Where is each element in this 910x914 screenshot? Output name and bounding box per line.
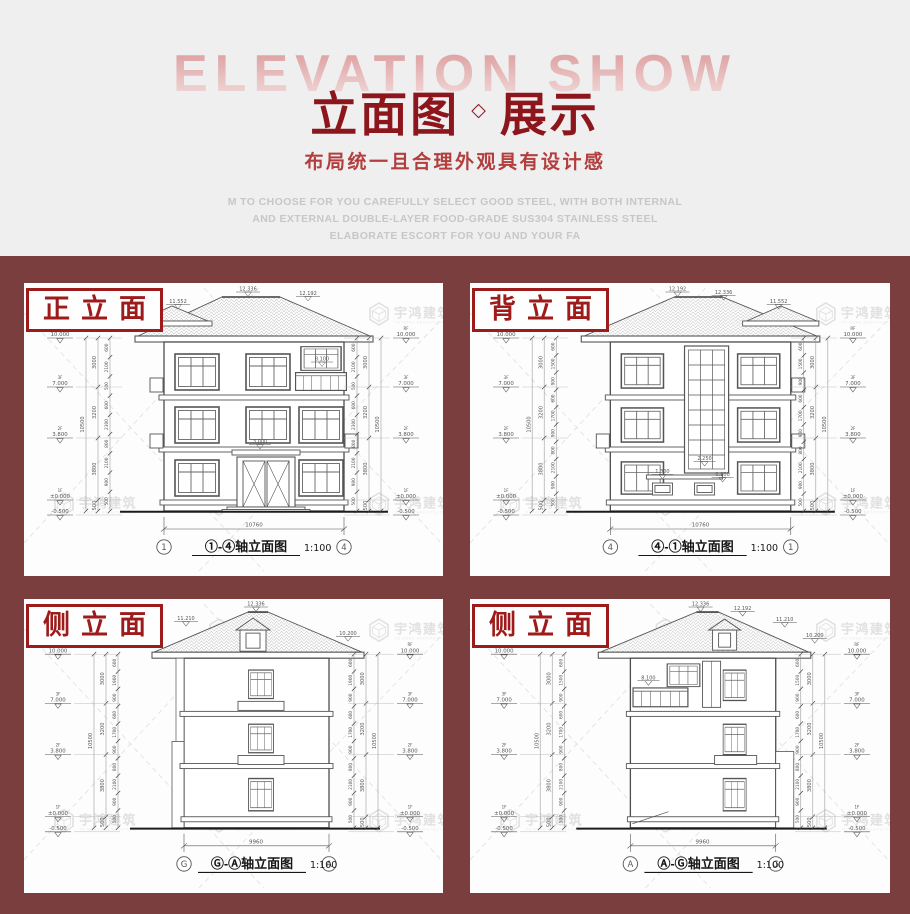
svg-text:2.250: 2.250 bbox=[697, 456, 711, 462]
dim-total-left: 10500 bbox=[534, 652, 542, 830]
svg-text:1700: 1700 bbox=[558, 727, 564, 738]
svg-text:500: 500 bbox=[798, 498, 804, 506]
svg-text:-0.500: -0.500 bbox=[844, 509, 862, 515]
dim-floors-right: 300032003800500 bbox=[807, 652, 815, 830]
svg-text:900: 900 bbox=[550, 481, 556, 489]
svg-text:3200: 3200 bbox=[538, 406, 544, 419]
svg-text:500: 500 bbox=[104, 497, 110, 505]
panel-side-elevation-ga: 侧立面 bbox=[24, 599, 443, 893]
svg-text:3000: 3000 bbox=[810, 356, 816, 369]
svg-text:3F: 3F bbox=[502, 691, 508, 696]
svg-text:3F: 3F bbox=[504, 375, 510, 380]
svg-text:1:100: 1:100 bbox=[310, 860, 337, 871]
panel-label-front: 正立面 bbox=[26, 288, 163, 332]
svg-text:1F: 1F bbox=[404, 488, 410, 493]
svg-text:G: G bbox=[181, 860, 188, 870]
svg-text:1F: 1F bbox=[850, 488, 856, 493]
svg-text:±0.000: ±0.000 bbox=[847, 811, 868, 817]
svg-text:2100: 2100 bbox=[795, 779, 801, 790]
drawing-caption: ①-④轴立面图 1:100 bbox=[192, 539, 331, 556]
svg-text:2100: 2100 bbox=[798, 462, 804, 473]
drawing-caption: Ⓐ-Ⓖ轴立面图 1:100 bbox=[644, 856, 784, 873]
svg-text:3000: 3000 bbox=[92, 356, 98, 369]
svg-text:④-①轴立面图: ④-①轴立面图 bbox=[651, 539, 733, 554]
svg-text:3.800: 3.800 bbox=[845, 432, 861, 438]
svg-text:600: 600 bbox=[798, 394, 804, 402]
svg-text:12.192: 12.192 bbox=[669, 287, 687, 293]
svg-text:3.800: 3.800 bbox=[498, 432, 514, 438]
dim-total-right: 10500 bbox=[375, 336, 383, 513]
svg-text:±0.000: ±0.000 bbox=[396, 494, 417, 500]
svg-text:1700: 1700 bbox=[550, 410, 556, 421]
building-side-ga bbox=[130, 612, 380, 829]
dim-floors-left: 300032003800500 bbox=[100, 652, 108, 830]
svg-text:-0.500: -0.500 bbox=[49, 826, 67, 832]
svg-text:4: 4 bbox=[608, 543, 613, 553]
svg-text:500: 500 bbox=[112, 815, 118, 823]
svg-text:8.100: 8.100 bbox=[315, 357, 329, 363]
level-marks-left: 10.000RF7.0003F3.8002F±0.0001F-0.500 bbox=[45, 642, 120, 837]
svg-text:2100: 2100 bbox=[351, 361, 357, 372]
svg-text:900: 900 bbox=[112, 797, 118, 805]
svg-text:3200: 3200 bbox=[807, 722, 813, 735]
svg-text:1.300: 1.300 bbox=[655, 469, 669, 475]
svg-text:800: 800 bbox=[112, 763, 118, 771]
svg-text:600: 600 bbox=[348, 711, 354, 719]
svg-text:900: 900 bbox=[112, 745, 118, 753]
svg-text:600: 600 bbox=[104, 343, 110, 351]
svg-text:4: 4 bbox=[341, 543, 346, 553]
svg-text:900: 900 bbox=[550, 429, 556, 437]
svg-text:1: 1 bbox=[161, 543, 166, 553]
dim-total-right: 10500 bbox=[819, 652, 827, 830]
svg-text:800: 800 bbox=[104, 439, 110, 447]
svg-text:10.000: 10.000 bbox=[847, 648, 866, 654]
svg-text:1F: 1F bbox=[56, 805, 62, 810]
svg-text:600: 600 bbox=[558, 658, 564, 666]
svg-text:Ⓖ-Ⓐ轴立面图: Ⓖ-Ⓐ轴立面图 bbox=[211, 856, 293, 871]
svg-text:10500: 10500 bbox=[534, 733, 540, 749]
svg-text:10.000: 10.000 bbox=[497, 332, 516, 338]
svg-text:RF: RF bbox=[854, 642, 860, 647]
svg-text:800: 800 bbox=[798, 446, 804, 454]
svg-text:±0.000: ±0.000 bbox=[50, 494, 71, 500]
svg-text:3.800: 3.800 bbox=[849, 749, 865, 755]
svg-text:2F: 2F bbox=[502, 742, 508, 747]
svg-text:10500: 10500 bbox=[372, 733, 378, 749]
svg-text:3F: 3F bbox=[56, 691, 62, 696]
svg-text:±0.000: ±0.000 bbox=[496, 494, 517, 500]
svg-text:10500: 10500 bbox=[375, 416, 381, 432]
svg-text:1F: 1F bbox=[408, 805, 414, 810]
svg-text:10500: 10500 bbox=[822, 416, 828, 432]
svg-text:800: 800 bbox=[351, 439, 357, 447]
svg-text:RF: RF bbox=[407, 642, 413, 647]
svg-text:10.000: 10.000 bbox=[49, 648, 68, 654]
svg-text:3F: 3F bbox=[408, 691, 414, 696]
svg-text:7.000: 7.000 bbox=[52, 381, 68, 387]
panel-side-elevation-ag: 侧立面 bbox=[470, 599, 890, 893]
panel-front-elevation: 正立面 bbox=[24, 283, 443, 576]
svg-text:10.200: 10.200 bbox=[806, 633, 823, 639]
svg-text:11.210: 11.210 bbox=[776, 617, 793, 623]
svg-text:3000: 3000 bbox=[100, 672, 106, 685]
dim-total-right: 10500 bbox=[372, 652, 380, 830]
svg-text:3.800: 3.800 bbox=[52, 432, 68, 438]
svg-text:7.000: 7.000 bbox=[402, 698, 418, 704]
svg-text:2100: 2100 bbox=[104, 457, 110, 468]
svg-text:3F: 3F bbox=[854, 691, 860, 696]
dim-total-left: 10500 bbox=[80, 336, 88, 513]
svg-text:500: 500 bbox=[360, 817, 366, 827]
dim-floors-right: 300032003800500 bbox=[363, 336, 371, 513]
bottom-dimension: 10760 bbox=[161, 517, 347, 535]
svg-text:2F: 2F bbox=[854, 742, 860, 747]
svg-text:0.900: 0.900 bbox=[715, 472, 729, 478]
svg-text:1F: 1F bbox=[504, 488, 510, 493]
svg-text:2100: 2100 bbox=[104, 361, 110, 372]
svg-text:3200: 3200 bbox=[546, 722, 552, 735]
svg-text:±0.000: ±0.000 bbox=[494, 811, 515, 817]
svg-text:3200: 3200 bbox=[363, 406, 369, 419]
svg-text:1500: 1500 bbox=[550, 358, 556, 369]
page-title: 立面图◇展示 bbox=[0, 76, 910, 145]
svg-text:Ⓐ-Ⓖ轴立面图: Ⓐ-Ⓖ轴立面图 bbox=[657, 856, 739, 871]
svg-text:500: 500 bbox=[351, 382, 357, 390]
svg-text:3000: 3000 bbox=[546, 672, 552, 685]
dim-inner-left: 600150090060017009008002100900500 bbox=[550, 336, 558, 513]
dim-inner-right: 600210050060023008002100900500 bbox=[351, 336, 359, 513]
svg-text:1F: 1F bbox=[58, 488, 64, 493]
svg-text:900: 900 bbox=[348, 693, 354, 701]
svg-text:900: 900 bbox=[348, 797, 354, 805]
svg-text:600: 600 bbox=[112, 711, 118, 719]
svg-text:500: 500 bbox=[795, 815, 801, 823]
svg-text:3800: 3800 bbox=[360, 779, 366, 792]
svg-text:10760: 10760 bbox=[245, 523, 263, 529]
svg-text:10.000: 10.000 bbox=[495, 648, 514, 654]
dim-floors-right: 300032003800500 bbox=[360, 652, 368, 830]
svg-text:±0.000: ±0.000 bbox=[48, 811, 68, 817]
svg-text:12.336: 12.336 bbox=[715, 290, 733, 296]
svg-text:800: 800 bbox=[795, 763, 801, 771]
dim-floors-right: 300032003800500 bbox=[810, 336, 818, 513]
svg-text:500: 500 bbox=[550, 498, 556, 506]
svg-text:900: 900 bbox=[558, 745, 564, 753]
svg-text:9960: 9960 bbox=[696, 839, 710, 845]
svg-text:1700: 1700 bbox=[112, 727, 118, 738]
dim-total-left: 10500 bbox=[526, 336, 534, 513]
svg-text:10.000: 10.000 bbox=[401, 648, 420, 654]
svg-text:①-④轴立面图: ①-④轴立面图 bbox=[205, 539, 287, 554]
svg-text:1:100: 1:100 bbox=[757, 860, 784, 871]
svg-text:600: 600 bbox=[795, 658, 801, 666]
svg-text:500: 500 bbox=[363, 501, 369, 511]
svg-text:600: 600 bbox=[351, 401, 357, 409]
svg-text:12.192: 12.192 bbox=[299, 291, 317, 297]
svg-text:±0.000: ±0.000 bbox=[843, 494, 864, 500]
diamond-icon: ◇ bbox=[471, 99, 489, 122]
svg-text:900: 900 bbox=[104, 478, 110, 486]
svg-text:500: 500 bbox=[538, 501, 544, 511]
dim-inner-right: 600190090060017009008002100900500 bbox=[348, 652, 356, 830]
svg-text:9960: 9960 bbox=[249, 839, 263, 845]
svg-text:11.210: 11.210 bbox=[177, 616, 194, 622]
dim-floors-left: 300032003800500 bbox=[546, 652, 554, 830]
svg-text:600: 600 bbox=[348, 658, 354, 666]
svg-text:900: 900 bbox=[795, 745, 801, 753]
dim-floors-left: 300032003800500 bbox=[538, 336, 546, 513]
svg-text:600: 600 bbox=[351, 343, 357, 351]
description-line-3: ELABORATE ESCORT FOR YOU AND YOUR FA bbox=[0, 230, 910, 242]
svg-text:2F: 2F bbox=[408, 742, 414, 747]
svg-text:1:100: 1:100 bbox=[751, 543, 778, 554]
svg-text:800: 800 bbox=[550, 446, 556, 454]
svg-text:3800: 3800 bbox=[92, 463, 98, 476]
svg-text:1F: 1F bbox=[502, 805, 508, 810]
description-line-2: AND EXTERNAL DOUBLE-LAYER FOOD-GRADE SUS… bbox=[0, 213, 910, 225]
panel-back-elevation: 背立面 bbox=[470, 283, 890, 576]
svg-text:1900: 1900 bbox=[112, 674, 118, 685]
svg-text:10.000: 10.000 bbox=[843, 332, 862, 338]
svg-text:600: 600 bbox=[795, 711, 801, 719]
svg-text:12.192: 12.192 bbox=[734, 606, 751, 612]
svg-text:600: 600 bbox=[550, 342, 556, 350]
dim-inner-right: 600150090060017009008002100900500 bbox=[798, 336, 806, 513]
svg-text:±0.000: ±0.000 bbox=[400, 811, 420, 817]
svg-text:500: 500 bbox=[807, 817, 813, 827]
svg-text:3.800: 3.800 bbox=[402, 749, 418, 755]
svg-text:900: 900 bbox=[558, 797, 564, 805]
dim-inner-left: 600210050060023008002100900500 bbox=[104, 336, 112, 513]
svg-text:7.000: 7.000 bbox=[398, 381, 414, 387]
svg-text:2100: 2100 bbox=[348, 779, 354, 790]
svg-text:500: 500 bbox=[351, 497, 357, 505]
svg-text:3000: 3000 bbox=[807, 672, 813, 685]
svg-text:3.800: 3.800 bbox=[398, 432, 414, 438]
svg-text:7.000: 7.000 bbox=[50, 698, 66, 704]
svg-text:3F: 3F bbox=[58, 375, 64, 380]
svg-text:2F: 2F bbox=[850, 426, 856, 431]
svg-text:2F: 2F bbox=[58, 426, 64, 431]
svg-text:600: 600 bbox=[104, 401, 110, 409]
svg-text:3.800: 3.800 bbox=[50, 749, 66, 755]
dim-floors-left: 300032003800500 bbox=[92, 336, 100, 513]
dim-total-left: 10500 bbox=[88, 652, 96, 830]
svg-text:3200: 3200 bbox=[100, 722, 106, 735]
svg-text:12.336: 12.336 bbox=[239, 287, 257, 293]
svg-text:11.552: 11.552 bbox=[770, 299, 788, 305]
svg-text:1500: 1500 bbox=[795, 674, 801, 685]
svg-text:3800: 3800 bbox=[810, 463, 816, 476]
svg-text:1: 1 bbox=[788, 543, 793, 553]
building-side-ag bbox=[576, 612, 827, 829]
svg-text:500: 500 bbox=[348, 815, 354, 823]
svg-text:500: 500 bbox=[810, 501, 816, 511]
level-marks-right: 10.000RF7.0003F3.8002F±0.0001F-0.500 bbox=[795, 642, 870, 837]
svg-text:3800: 3800 bbox=[538, 463, 544, 476]
svg-text:-0.500: -0.500 bbox=[495, 826, 513, 832]
bottom-dimension: 9960 bbox=[181, 834, 332, 852]
header-section: ELEVATION SHOW 立面图◇展示 布局统一且合理外观具有设计感 M T… bbox=[0, 0, 910, 256]
svg-text:10500: 10500 bbox=[88, 733, 94, 749]
drawing-caption: Ⓖ-Ⓐ轴立面图 1:100 bbox=[198, 856, 337, 873]
svg-text:600: 600 bbox=[558, 711, 564, 719]
svg-text:900: 900 bbox=[798, 429, 804, 437]
svg-text:600: 600 bbox=[798, 342, 804, 350]
svg-text:3000: 3000 bbox=[363, 356, 369, 369]
panel-label-side-ag: 侧立面 bbox=[472, 604, 609, 648]
svg-text:900: 900 bbox=[558, 693, 564, 701]
svg-text:900: 900 bbox=[798, 377, 804, 385]
svg-text:900: 900 bbox=[550, 377, 556, 385]
svg-text:500: 500 bbox=[104, 382, 110, 390]
page: ELEVATION SHOW 立面图◇展示 布局统一且合理外观具有设计感 M T… bbox=[0, 0, 910, 914]
svg-text:1500: 1500 bbox=[558, 674, 564, 685]
drawing-caption: ④-①轴立面图 1:100 bbox=[638, 539, 778, 555]
svg-text:2100: 2100 bbox=[550, 462, 556, 473]
svg-text:3200: 3200 bbox=[810, 406, 816, 419]
svg-text:8.100: 8.100 bbox=[641, 675, 655, 681]
svg-text:2F: 2F bbox=[56, 742, 62, 747]
level-marks-left: 10.000RF7.0003F3.8002F±0.0001F-0.500 bbox=[491, 642, 566, 837]
description-line-1: M TO CHOOSE FOR YOU CAREFULLY SELECT GOO… bbox=[0, 196, 910, 208]
bottom-dimension: 9960 bbox=[627, 834, 778, 852]
svg-text:2F: 2F bbox=[504, 426, 510, 431]
svg-text:10.200: 10.200 bbox=[339, 631, 356, 637]
svg-text:7.000: 7.000 bbox=[496, 698, 512, 704]
svg-text:800: 800 bbox=[348, 763, 354, 771]
svg-text:10760: 10760 bbox=[692, 523, 710, 529]
svg-text:900: 900 bbox=[112, 693, 118, 701]
svg-text:2300: 2300 bbox=[351, 419, 357, 430]
svg-text:11.552: 11.552 bbox=[169, 299, 187, 305]
svg-text:RF: RF bbox=[850, 326, 856, 331]
svg-text:10500: 10500 bbox=[526, 416, 532, 432]
svg-text:3800: 3800 bbox=[807, 779, 813, 792]
svg-text:7.000: 7.000 bbox=[849, 698, 865, 704]
svg-text:3.800: 3.800 bbox=[496, 749, 512, 755]
svg-text:3.000: 3.000 bbox=[253, 439, 267, 445]
svg-text:500: 500 bbox=[558, 815, 564, 823]
svg-text:500: 500 bbox=[546, 817, 552, 827]
svg-text:RF: RF bbox=[403, 326, 409, 331]
level-marks-right: 10.000RF7.0003F3.8002F±0.0001F-0.500 bbox=[348, 642, 423, 837]
svg-text:600: 600 bbox=[550, 394, 556, 402]
dim-inner-right: 600150090060017009008002100900500 bbox=[795, 652, 803, 830]
svg-text:12.336: 12.336 bbox=[247, 602, 264, 608]
svg-text:3F: 3F bbox=[850, 375, 856, 380]
dim-inner-left: 600150090060017009008002100900500 bbox=[558, 652, 566, 830]
svg-text:10500: 10500 bbox=[80, 416, 86, 432]
svg-text:10500: 10500 bbox=[819, 733, 825, 749]
title-main: 立面图 bbox=[310, 88, 460, 141]
svg-text:2300: 2300 bbox=[104, 419, 110, 430]
svg-text:1900: 1900 bbox=[348, 674, 354, 685]
svg-text:2100: 2100 bbox=[351, 457, 357, 468]
svg-text:3800: 3800 bbox=[363, 463, 369, 476]
svg-text:10.000: 10.000 bbox=[397, 332, 416, 338]
svg-text:1:100: 1:100 bbox=[304, 543, 331, 554]
svg-text:3800: 3800 bbox=[100, 779, 106, 792]
bottom-dimension: 10760 bbox=[607, 517, 793, 535]
svg-text:3200: 3200 bbox=[360, 722, 366, 735]
svg-text:2100: 2100 bbox=[558, 779, 564, 790]
svg-text:-0.500: -0.500 bbox=[51, 509, 69, 515]
svg-text:900: 900 bbox=[795, 693, 801, 701]
svg-text:1F: 1F bbox=[854, 805, 860, 810]
svg-text:-0.500: -0.500 bbox=[848, 826, 866, 832]
svg-text:1700: 1700 bbox=[798, 410, 804, 421]
svg-text:3000: 3000 bbox=[360, 672, 366, 685]
svg-text:600: 600 bbox=[112, 658, 118, 666]
svg-text:-0.500: -0.500 bbox=[397, 509, 415, 515]
svg-text:1500: 1500 bbox=[798, 358, 804, 369]
svg-text:3200: 3200 bbox=[92, 406, 98, 419]
svg-text:500: 500 bbox=[92, 501, 98, 511]
svg-text:12.336: 12.336 bbox=[692, 602, 709, 608]
svg-text:7.000: 7.000 bbox=[845, 381, 861, 387]
svg-text:1700: 1700 bbox=[795, 727, 801, 738]
svg-text:1700: 1700 bbox=[348, 727, 354, 738]
svg-text:900: 900 bbox=[348, 745, 354, 753]
svg-text:-0.500: -0.500 bbox=[497, 509, 515, 515]
svg-text:-0.500: -0.500 bbox=[401, 826, 419, 832]
dim-inner-left: 600190090060017009008002100900500 bbox=[112, 652, 120, 830]
subtitle: 布局统一且合理外观具有设计感 bbox=[0, 147, 910, 174]
svg-text:7.000: 7.000 bbox=[498, 381, 514, 387]
svg-text:800: 800 bbox=[558, 763, 564, 771]
panel-label-side-ga: 侧立面 bbox=[26, 604, 163, 648]
svg-text:900: 900 bbox=[795, 797, 801, 805]
dim-total-right: 10500 bbox=[822, 336, 830, 513]
svg-text:3800: 3800 bbox=[546, 779, 552, 792]
svg-text:2F: 2F bbox=[404, 426, 410, 431]
title-tail: 展示 bbox=[500, 88, 600, 141]
panel-label-back: 背立面 bbox=[472, 288, 609, 332]
svg-text:900: 900 bbox=[798, 481, 804, 489]
svg-text:10.000: 10.000 bbox=[51, 332, 70, 338]
svg-text:500: 500 bbox=[100, 817, 106, 827]
svg-text:A: A bbox=[627, 860, 633, 870]
svg-text:3000: 3000 bbox=[538, 356, 544, 369]
svg-text:3F: 3F bbox=[404, 375, 410, 380]
svg-text:2100: 2100 bbox=[112, 779, 118, 790]
svg-text:900: 900 bbox=[351, 478, 357, 486]
